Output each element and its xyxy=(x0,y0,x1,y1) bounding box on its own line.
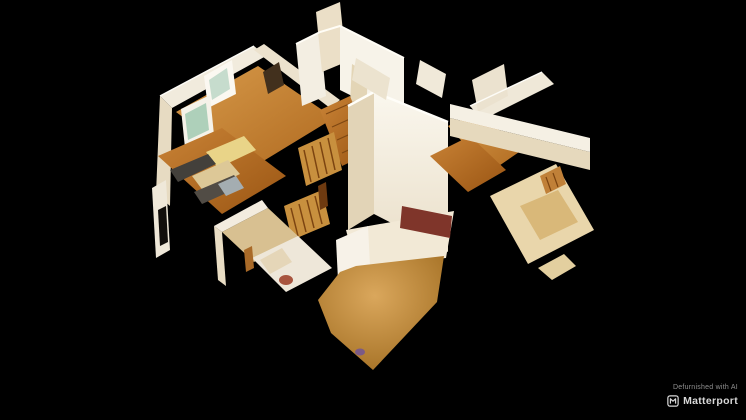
carpet-floor xyxy=(318,256,444,370)
family-room xyxy=(318,206,454,370)
toilet xyxy=(279,275,293,285)
dollhouse-3d-model[interactable] xyxy=(0,0,746,420)
stair-railings xyxy=(284,132,342,240)
matterport-brand: Matterport xyxy=(667,395,738,407)
right-wing xyxy=(430,64,594,280)
matterport-brand-label: Matterport xyxy=(683,395,738,407)
defurnished-label: Defurnished with AI xyxy=(667,384,738,392)
matterport-viewer-canvas: Defurnished with AI Matterport xyxy=(0,0,746,420)
watermark: Defurnished with AI Matterport xyxy=(667,384,738,407)
matterport-logo-icon xyxy=(667,395,679,407)
